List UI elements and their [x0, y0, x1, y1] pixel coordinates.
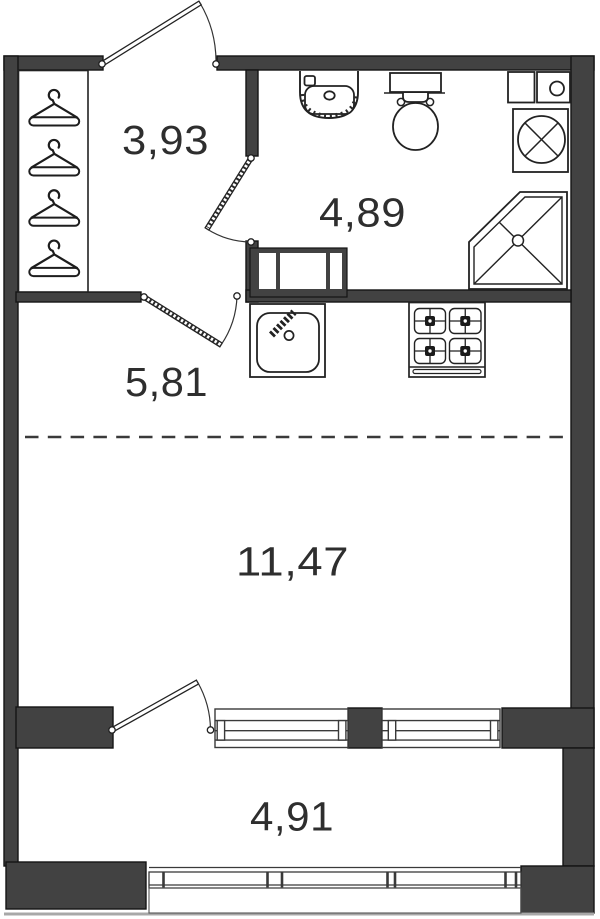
- svg-text:4,91: 4,91: [250, 794, 334, 840]
- svg-text:4,89: 4,89: [319, 190, 406, 236]
- svg-text:11,47: 11,47: [236, 539, 349, 585]
- svg-text:3,93: 3,93: [122, 117, 209, 163]
- svg-text:5,81: 5,81: [125, 359, 208, 405]
